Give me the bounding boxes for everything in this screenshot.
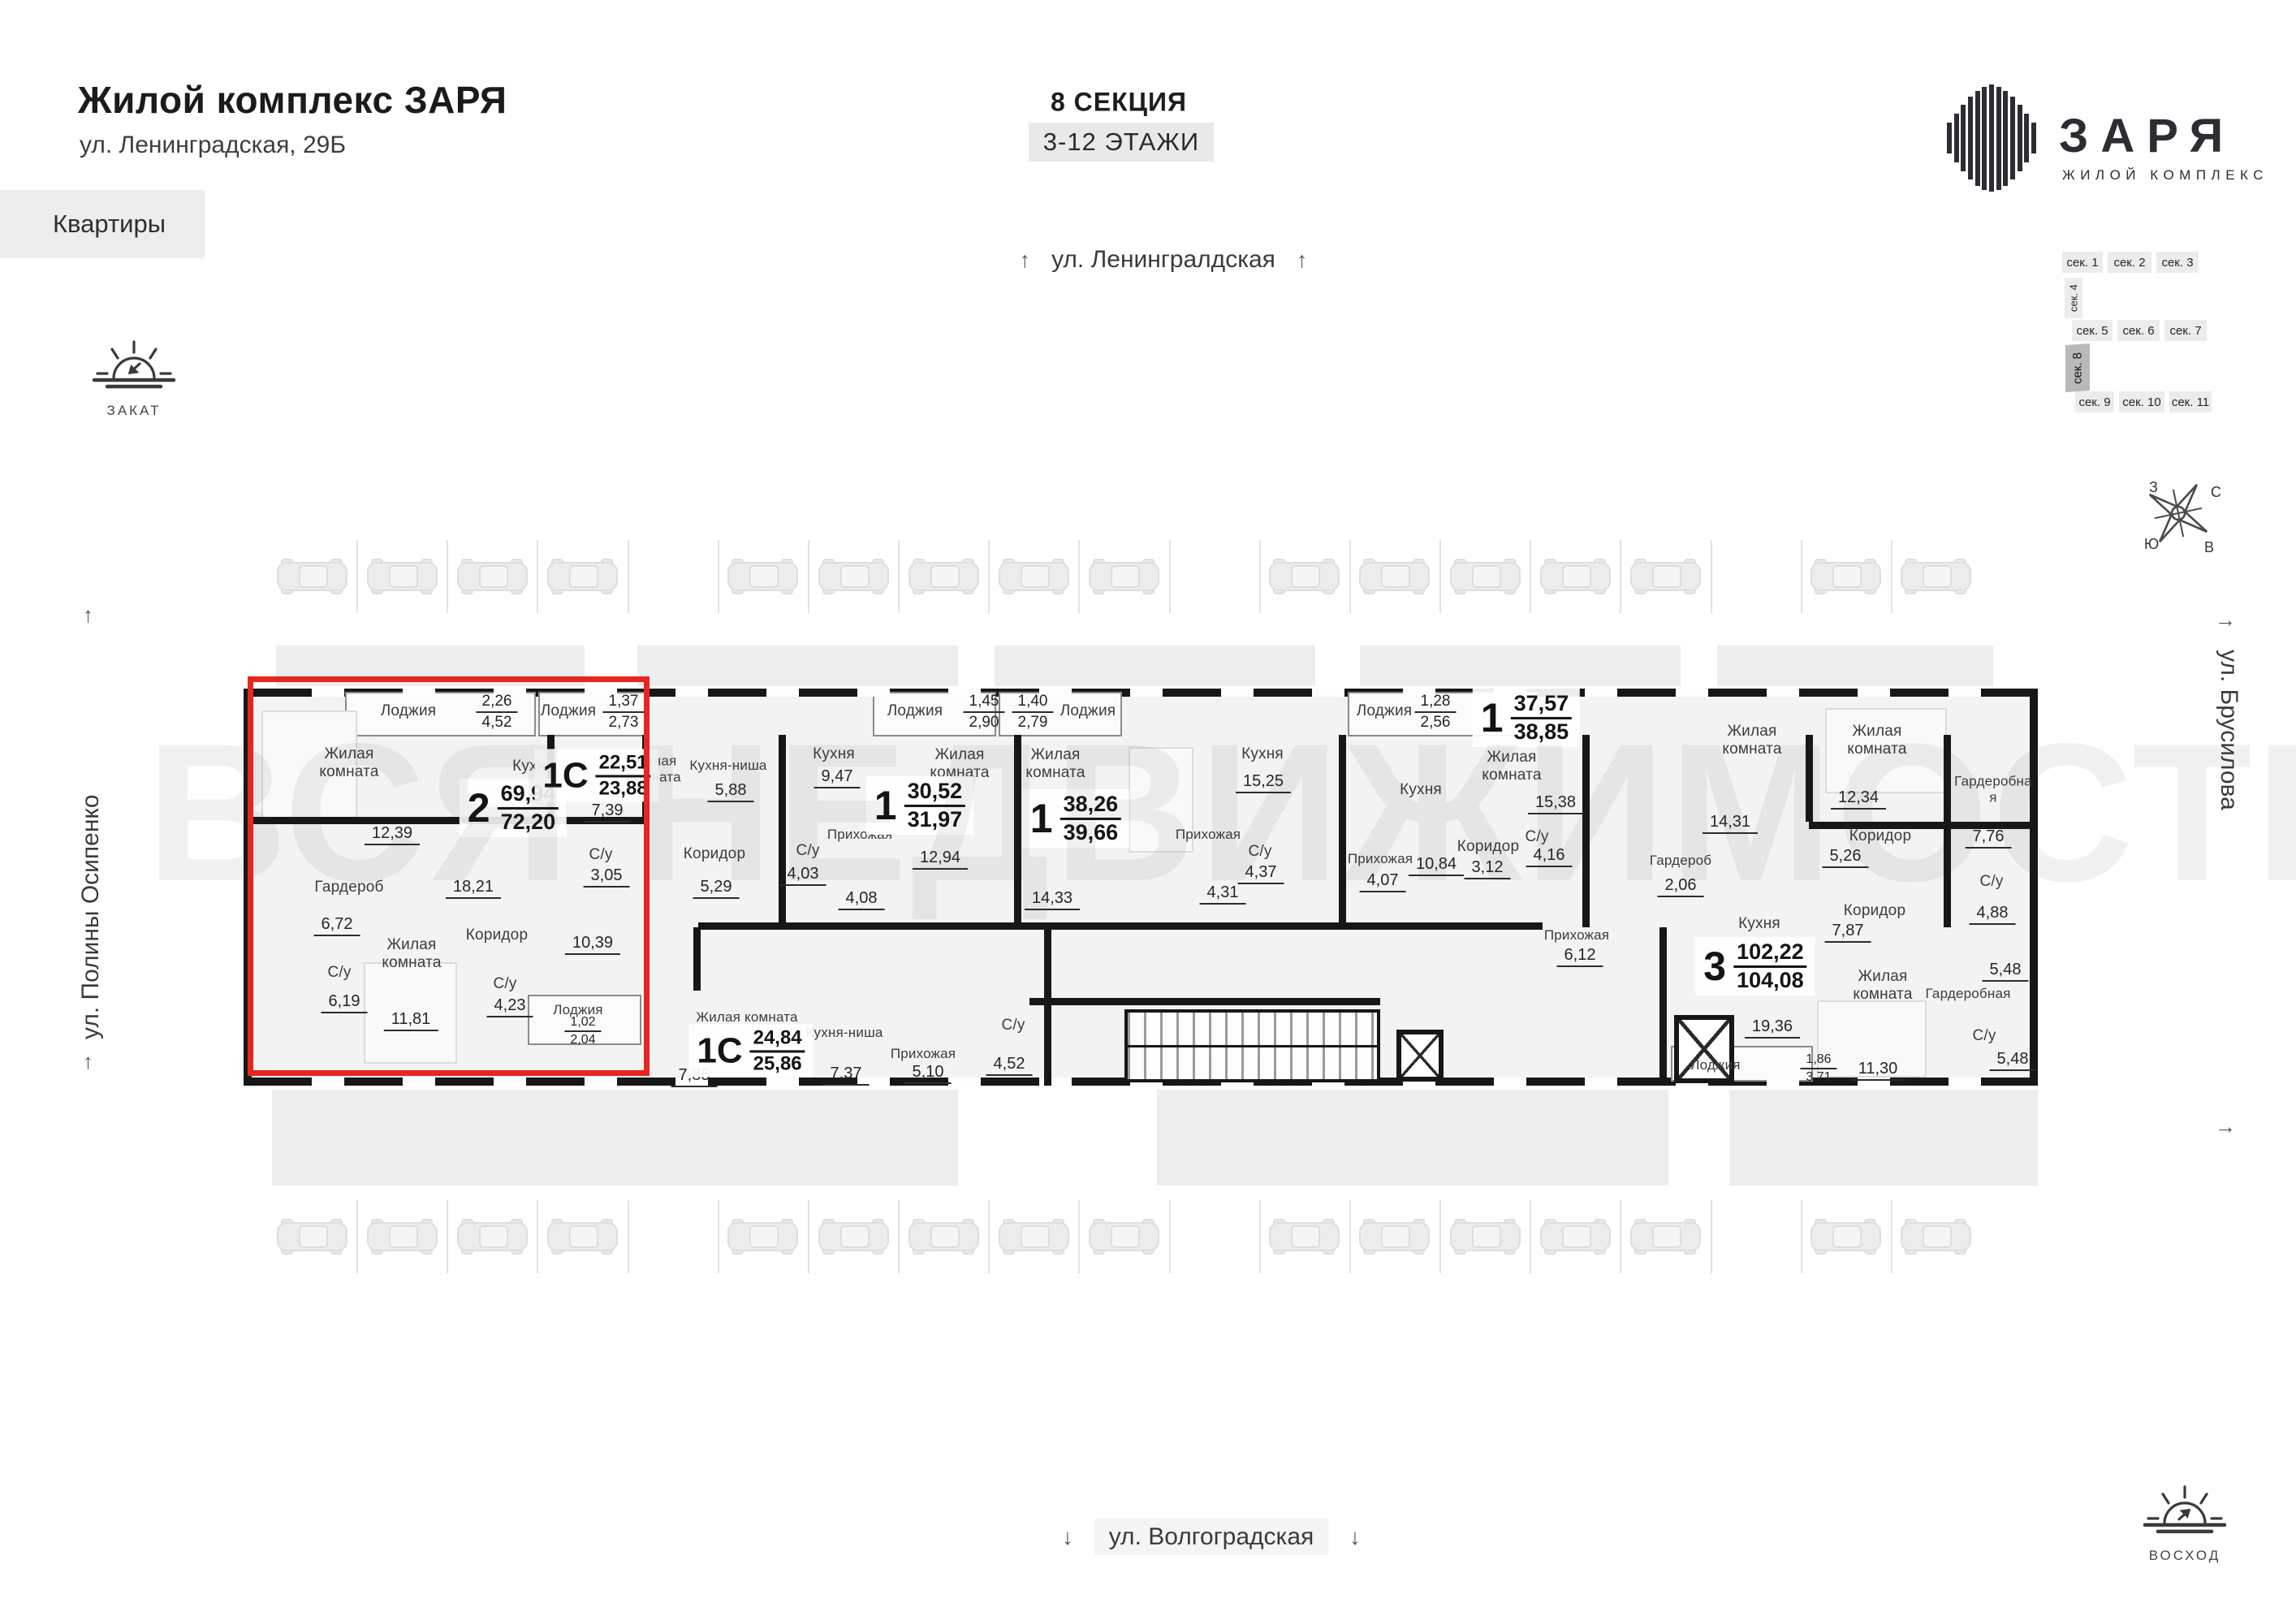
loggia-area: 1,402,79: [1012, 693, 1054, 732]
section-map-item-6[interactable]: сек. 6: [2117, 320, 2160, 341]
room-label: Прихожая: [1176, 827, 1241, 843]
sunrise-icon: [2140, 1484, 2229, 1543]
compass-west: З: [2149, 479, 2158, 496]
apartment-type: 1: [1030, 798, 1053, 839]
room-label: Гардеробная: [1953, 773, 2034, 805]
room-label: Лоджия: [1690, 1057, 1740, 1073]
apartment-total-area: 31,97: [908, 807, 963, 831]
apartment-badge-1room-c[interactable]: 1 37,5738,85: [1473, 689, 1580, 747]
parking-stall: [356, 540, 447, 613]
parking-stall: [1349, 1200, 1439, 1273]
down-arrow-icon: ↓: [1041, 1525, 1094, 1549]
up-arrow-icon: ↑: [1275, 248, 1329, 272]
room-area: 15,25: [1236, 772, 1291, 793]
area-reduced: 1,40: [1012, 693, 1054, 713]
apartment-type: 3: [1703, 946, 1726, 987]
room-label: Кухня: [1400, 781, 1442, 799]
area-reduced: 1,45: [964, 693, 1005, 713]
room-label: Гардероб: [1650, 853, 1711, 869]
wall-segment: [1044, 927, 1051, 1086]
parking-stall: [1620, 1200, 1710, 1273]
sunset-indicator: ЗАКАТ: [89, 339, 179, 419]
room-label: С/у: [1248, 843, 1271, 861]
parking-stall: [808, 1200, 898, 1273]
car-icon: [1448, 1216, 1523, 1258]
wall-segment: [1806, 735, 1813, 822]
apartment-total-area: 39,66: [1064, 820, 1119, 844]
room-area: 5,26: [1823, 847, 1869, 868]
section-map-item-4[interactable]: сек. 4: [2065, 278, 2082, 318]
apartment-area: 102,22: [1733, 939, 1807, 968]
parking-stall: [1439, 540, 1530, 613]
canopy: [637, 646, 958, 686]
section-map-item-1[interactable]: сек. 1: [2062, 252, 2103, 273]
parking-stall: [898, 1200, 988, 1273]
sunrise-label: ВОСХОД: [2140, 1548, 2229, 1564]
room-area: 5,88: [708, 781, 754, 802]
parking-stall: [356, 1200, 447, 1273]
area-full: 2,90: [964, 713, 1005, 732]
room-area: 11,30: [1851, 1060, 1905, 1081]
car-icon: [726, 1216, 801, 1258]
car-icon: [1809, 1216, 1884, 1258]
room-area: 5,48: [1983, 961, 2029, 982]
parking-stall: [628, 1200, 718, 1273]
page-address: ул. Ленинградская, 29Б: [80, 132, 346, 159]
room-area: 14,33: [1025, 889, 1080, 910]
parking-stall: [1620, 540, 1710, 613]
parking-stall: [1891, 540, 1981, 613]
apartment-area: 24,84: [750, 1026, 805, 1052]
room-area: 4,07: [1360, 871, 1406, 892]
car-icon: [1899, 555, 1974, 598]
room-label: Прихожая: [891, 1046, 956, 1062]
compass-south: Ю: [2144, 536, 2159, 553]
apartment-badge-3room[interactable]: 3 102,22104,08: [1695, 937, 1815, 996]
street-top-label: ул. Ленингралдская: [1051, 246, 1275, 273]
section-map-item-2[interactable]: сек. 2: [2108, 252, 2151, 273]
parking-stall: [1169, 1200, 1259, 1273]
room-area: 10,84: [1409, 855, 1464, 876]
parking-stall: [628, 540, 718, 613]
section-floors-badge: 3-12 ЭТАЖИ: [1029, 123, 1214, 162]
apartment-type: 1: [874, 785, 897, 826]
apartment-badge-studio-2[interactable]: 1С 24,8425,86: [688, 1024, 813, 1077]
car-icon: [1899, 1216, 1974, 1258]
area-full: 2,56: [1415, 713, 1457, 732]
parking-stall: [1711, 540, 1801, 613]
wall-segment: [693, 927, 701, 991]
room-area: 7,87: [1825, 922, 1871, 943]
room-label: Жилая комната: [1007, 746, 1104, 782]
right-arrow-icon: →: [2215, 607, 2236, 633]
section-map-item-3[interactable]: сек. 3: [2156, 252, 2199, 273]
floorplan-page: Жилой комплекс ЗАРЯ ул. Ленинградская, 2…: [0, 0, 2296, 1624]
street-left-label: ул. Полины Осипенко: [77, 641, 105, 1039]
parking-stall: [1078, 1200, 1168, 1273]
parking-stall: [1349, 540, 1439, 613]
car-icon: [1357, 555, 1432, 598]
car-icon: [1448, 555, 1523, 598]
car-icon: [455, 555, 530, 598]
parking-stall: [537, 1200, 627, 1273]
parking-row-bottom: [268, 1200, 1981, 1273]
wall-segment: [1582, 735, 1590, 927]
room-label: Прихожая: [1348, 851, 1413, 867]
parking-stall: [268, 540, 356, 613]
sunrise-indicator: ВОСХОД: [2140, 1484, 2229, 1564]
room-label: Коридор: [1849, 827, 1911, 845]
car-icon: [997, 1216, 1072, 1258]
canopy: [1717, 646, 1993, 686]
area-reduced: 1,28: [1415, 693, 1457, 713]
room-label: С/у: [1979, 873, 2003, 891]
car-icon: [817, 1216, 891, 1258]
car-icon: [365, 1216, 440, 1258]
section-map-item-8-active[interactable]: сек. 8: [2065, 343, 2090, 392]
room-label: Лоджия: [887, 702, 943, 720]
up-arrow-icon: ↑: [999, 248, 1052, 272]
parking-stall: [1078, 540, 1168, 613]
apartment-area: 38,26: [1060, 792, 1122, 820]
area-full: 2,79: [1012, 713, 1054, 732]
car-icon: [1087, 555, 1162, 598]
loggia-area: 1,452,90: [964, 693, 1005, 732]
canopy: [1157, 1090, 1668, 1186]
room-area: 5,48: [1990, 1050, 2036, 1071]
room-label: Жилая комната: [1699, 723, 1805, 758]
parking-stall: [808, 540, 898, 613]
wall-segment: [779, 735, 786, 927]
room-label: Кухня-ниша: [689, 758, 767, 774]
room-area: 7,76: [1966, 827, 2012, 849]
room-area: 4,88: [1970, 904, 2016, 925]
parking-stall: [1259, 1200, 1349, 1273]
room-label: Жилая комната: [696, 1009, 797, 1026]
car-icon: [365, 555, 440, 598]
car-icon: [1539, 1216, 1613, 1258]
room-area: 15,38: [1528, 793, 1583, 814]
compass: С В Ю З: [2120, 455, 2242, 577]
room-area: 4,52: [986, 1055, 1033, 1076]
room-label: Коридор: [1457, 838, 1519, 856]
sunset-label: ЗАКАТ: [89, 403, 179, 419]
apartment-area: 30,52: [904, 779, 966, 807]
car-icon: [997, 555, 1072, 598]
room-label: Кухня: [1738, 915, 1780, 933]
room-label: Кухня: [813, 745, 855, 763]
room-area: 5,29: [693, 878, 740, 899]
parking-stall: [988, 1200, 1078, 1273]
staircase: [1124, 1009, 1380, 1082]
section-map-item-7[interactable]: сек. 7: [2164, 320, 2207, 341]
wall-segment: [1029, 998, 1380, 1005]
section-map-item-9[interactable]: сек. 9: [2075, 391, 2114, 412]
room-label: Гардеробная: [1923, 986, 2013, 1002]
room-label: Лоджия: [1060, 702, 1116, 720]
parking-stall: [1711, 1200, 1801, 1273]
parking-stall: [447, 1200, 537, 1273]
car-icon: [275, 1216, 350, 1258]
car-icon: [1357, 1216, 1432, 1258]
room-area: 14,31: [1703, 813, 1758, 834]
car-icon: [1629, 1216, 1703, 1258]
wall-segment: [698, 922, 1543, 930]
room-area: 6,12: [1557, 946, 1603, 967]
room-label: Коридор: [684, 845, 745, 863]
street-right-label: ул. Брусилова: [2215, 650, 2242, 1104]
apartment-total-area: 25,86: [753, 1052, 802, 1074]
compass-north: С: [2211, 484, 2221, 501]
parking-stall: [898, 540, 988, 613]
wall-segment: [1944, 735, 1951, 927]
room-label: С/у: [796, 842, 819, 860]
room-label: С/у: [1001, 1017, 1025, 1034]
room-area: 4,37: [1238, 863, 1284, 884]
car-icon: [1809, 555, 1884, 598]
canopy: [1729, 1090, 2038, 1186]
room-area: 12,34: [1831, 788, 1886, 810]
up-arrow-icon: ↑: [83, 603, 93, 628]
parking-stall: [1801, 1200, 1891, 1273]
room-area: 4,03: [780, 865, 826, 886]
parking-stall: [1530, 540, 1620, 613]
car-icon: [275, 555, 350, 598]
car-icon: [1087, 1216, 1162, 1258]
area-reduced: 1,86: [1800, 1052, 1836, 1069]
room-label: Кухня: [1241, 745, 1284, 763]
room-label: Жилая комната: [1830, 968, 1936, 1004]
apartment-badge-1room-a[interactable]: 1 30,5231,97: [866, 776, 973, 835]
parking-stall: [1439, 1200, 1530, 1273]
car-icon: [1267, 555, 1342, 598]
right-arrow-icon: →: [2215, 1114, 2236, 1139]
room-label: Лоджия: [1357, 702, 1413, 720]
section-name: 8 СЕКЦИЯ: [1051, 88, 1187, 118]
parking-stall: [1530, 1200, 1620, 1273]
section-map-item-11[interactable]: сек. 11: [2169, 391, 2212, 412]
sunset-icon: [89, 339, 179, 398]
car-icon: [1539, 555, 1613, 598]
logo: ЗАРЯ ЖИЛОЙ КОМПЛЕКС: [1947, 81, 2272, 195]
wall-segment: [1659, 927, 1667, 1086]
area-full: 3,71: [1800, 1069, 1836, 1085]
room-label: С/у: [1525, 828, 1548, 846]
apartment-badge-1room-b[interactable]: 1 38,2639,66: [1022, 789, 1129, 848]
apartment-total-area: 104,08: [1737, 968, 1804, 992]
apartment-type: 1С: [697, 1033, 742, 1069]
down-arrow-icon: ↓: [1328, 1525, 1382, 1549]
room-label: Жилая комната: [1463, 749, 1560, 784]
room-area: 4,16: [1526, 846, 1573, 867]
parking-stall: [268, 1200, 356, 1273]
parking-stall: [1801, 540, 1891, 613]
room-area: 12,94: [913, 849, 968, 870]
elevator: [1396, 1030, 1444, 1082]
room-area: 4,31: [1200, 883, 1246, 905]
parking-stall: [988, 540, 1078, 613]
room-area: 7,37: [823, 1065, 870, 1086]
room-label: Жилая комната: [1824, 723, 1930, 758]
room-area: 4,08: [839, 889, 885, 910]
street-bottom-label: ул. Волгоградская: [1094, 1518, 1329, 1555]
section-map-item-5[interactable]: сек. 5: [2072, 320, 2113, 341]
room-label: Коридор: [1844, 902, 1905, 920]
up-arrow-icon: ↑: [83, 1049, 93, 1074]
car-icon: [546, 1216, 620, 1258]
parking-stall: [718, 1200, 808, 1273]
room-area: 3,12: [1465, 858, 1511, 879]
loggia-area: 1,282,56: [1415, 693, 1457, 732]
tab-apartments[interactable]: Квартиры: [0, 190, 205, 258]
street-top: ↑ул. Ленингралдская↑: [999, 246, 1329, 274]
parking-stall: [1891, 1200, 1981, 1273]
parking-stall: [1169, 540, 1259, 613]
car-icon: [1629, 555, 1703, 598]
room-area: 9,47: [814, 767, 861, 788]
parking-stall: [1259, 540, 1349, 613]
loggia-area: 1,863,71: [1800, 1052, 1836, 1085]
page-title: Жилой комплекс ЗАРЯ: [78, 78, 507, 122]
car-icon: [455, 1216, 530, 1258]
room-area: 19,36: [1745, 1017, 1800, 1039]
logo-name: ЗАРЯ: [2059, 109, 2235, 163]
canopy: [272, 1090, 958, 1186]
canopy: [995, 646, 1315, 686]
parking-row-top: [268, 540, 1981, 613]
canopy: [1360, 646, 1681, 686]
wall-segment: [1339, 735, 1346, 927]
room-label: Кухня-ниша: [804, 1025, 885, 1041]
car-icon: [907, 1216, 982, 1258]
room-area: 5,10: [905, 1063, 952, 1084]
logo-subtitle: ЖИЛОЙ КОМПЛЕКС: [2062, 167, 2268, 184]
car-icon: [546, 555, 620, 598]
parking-stall: [718, 540, 808, 613]
section-map-item-10[interactable]: сек. 10: [2119, 391, 2164, 412]
apartment-area: 37,57: [1511, 691, 1573, 719]
street-bottom: ↓ул. Волгоградская↓: [1041, 1523, 1382, 1551]
car-icon: [1267, 1216, 1342, 1258]
compass-east: В: [2204, 539, 2214, 556]
room-label: Прихожая: [1544, 927, 1609, 944]
car-icon: [726, 555, 801, 598]
room-area: 2,06: [1658, 876, 1704, 897]
room-label: С/у: [1972, 1027, 1996, 1045]
apartment-type: 1: [1481, 698, 1504, 738]
car-icon: [817, 555, 891, 598]
logo-sun-icon: [1947, 81, 2036, 195]
car-icon: [907, 555, 982, 598]
parking-stall: [447, 540, 537, 613]
apartment-total-area: 38,85: [1514, 719, 1569, 744]
parking-stall: [537, 540, 627, 613]
selected-apartment-highlight[interactable]: [248, 676, 650, 1076]
